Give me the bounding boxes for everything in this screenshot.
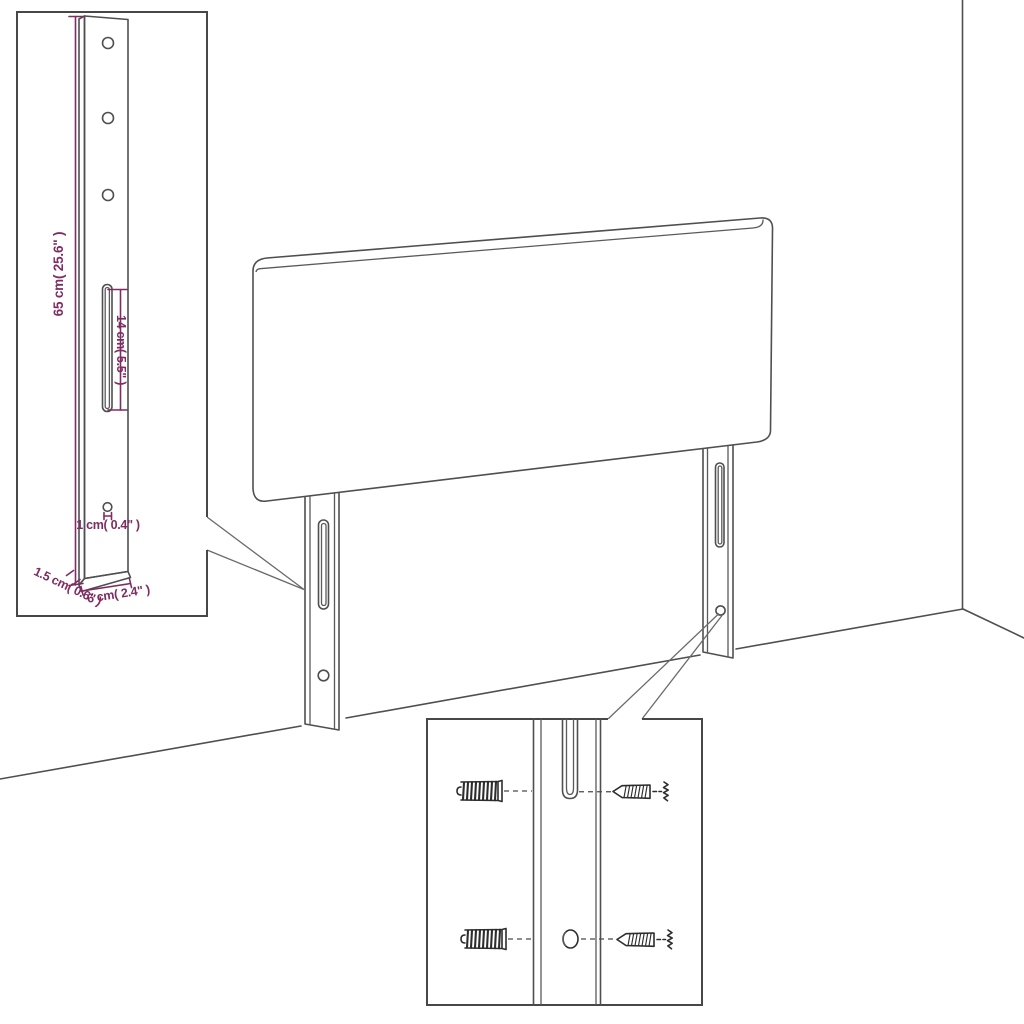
- diagram-svg: 65 cm( 25.6" ) 14 cm( 5.5" ) 1 cm( 0.4" …: [0, 0, 1024, 1024]
- callout-line: [207, 550, 304, 590]
- callout-left-leg-detail: [207, 517, 304, 590]
- leg-height-label: 65 cm( 25.6" ): [51, 232, 66, 317]
- callout-line: [642, 616, 722, 720]
- wall-plug-anchor: [461, 929, 506, 950]
- screw-detail-inset-fill: [427, 719, 702, 1005]
- screw-detail-inset: [427, 719, 702, 1005]
- headboard-panel: [253, 218, 773, 501]
- headboard-left-leg: [305, 460, 339, 730]
- floor-line-right: [963, 609, 1024, 638]
- panel-outline: [253, 218, 773, 501]
- wall-plug-anchor: [457, 781, 502, 802]
- assembly-diagram: 65 cm( 25.6" ) 14 cm( 5.5" ) 1 cm( 0.4" …: [0, 0, 1024, 1024]
- callout-line: [207, 517, 304, 590]
- callout-line: [608, 614, 719, 720]
- leg-detail-inset: 65 cm( 25.6" ) 14 cm( 5.5" ) 1 cm( 0.4" …: [17, 12, 207, 616]
- hole-diameter-label: 1 cm( 0.4" ): [76, 518, 140, 532]
- slot-length-label: 14 cm( 5.5" ): [114, 315, 128, 385]
